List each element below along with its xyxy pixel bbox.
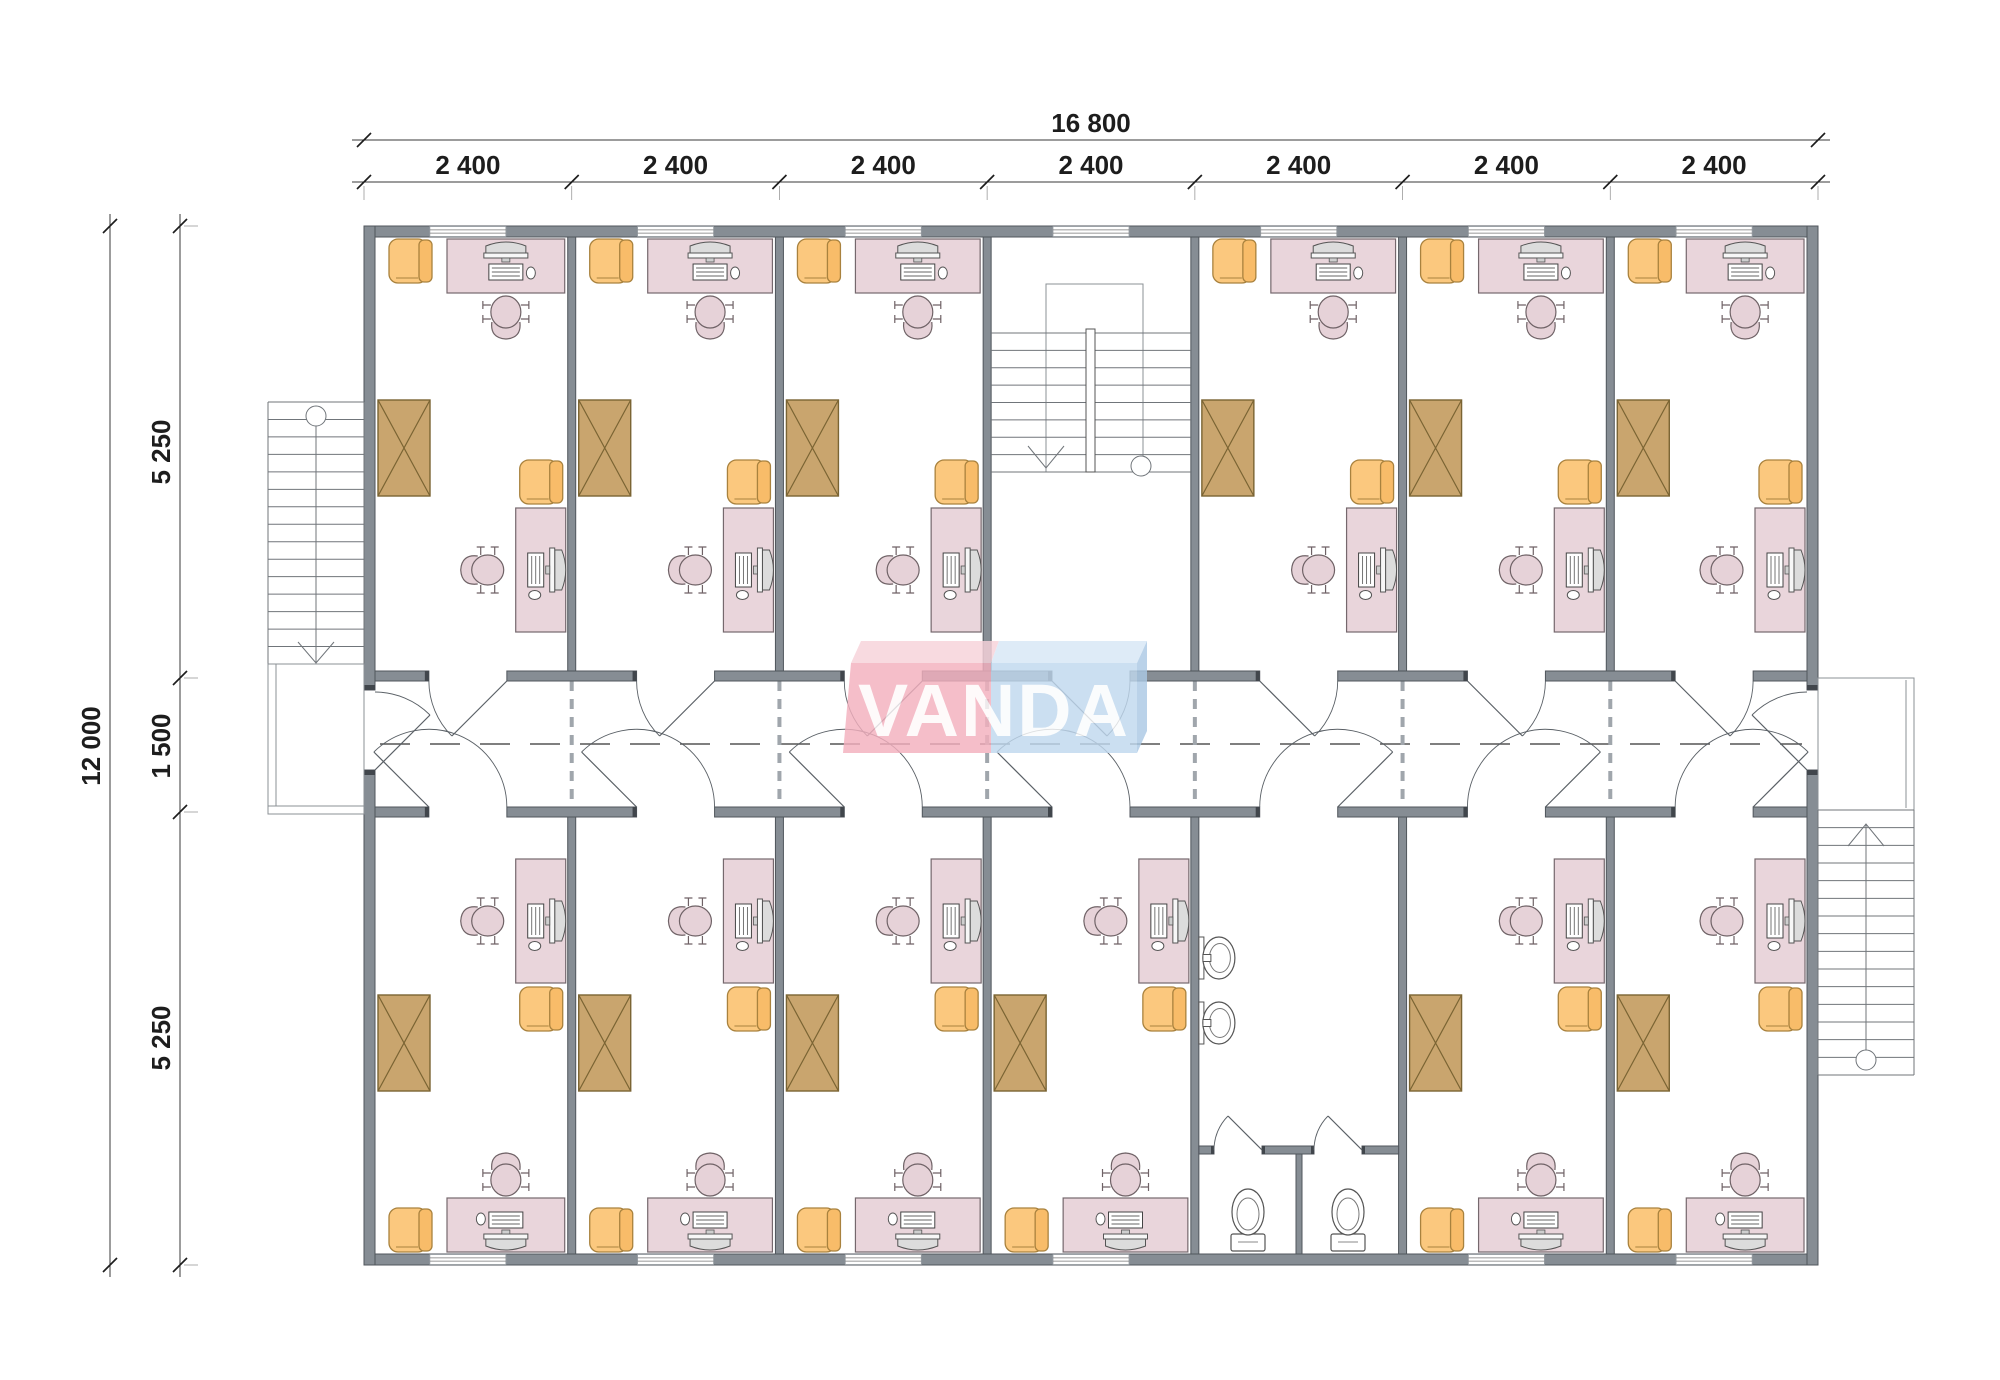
dim-bay-3: 2 400 [851, 150, 916, 180]
sink-icon [1199, 937, 1235, 979]
task-chair-icon [1700, 547, 1743, 593]
armchair-icon [797, 1208, 840, 1252]
door-swing-icon [637, 681, 715, 736]
wall [375, 807, 429, 817]
door-swing-icon [1467, 729, 1600, 807]
armchair-icon [727, 460, 770, 504]
wall [983, 237, 991, 671]
office-room [1617, 859, 1805, 1252]
stair-landing [268, 664, 364, 814]
task-chair-icon [483, 1153, 529, 1196]
armchair-icon [520, 987, 563, 1031]
task-chair-icon [1499, 898, 1542, 944]
door-swing-icon [375, 692, 430, 770]
armchair-icon [1005, 1208, 1048, 1252]
wardrobe-icon [378, 400, 430, 496]
task-chair-icon [461, 547, 504, 593]
armchair-icon [520, 460, 563, 504]
task-chair-icon [687, 1153, 733, 1196]
wall [1399, 237, 1407, 671]
office-room [378, 239, 566, 632]
armchair-icon [1759, 460, 1802, 504]
window [845, 227, 921, 237]
office-room [786, 239, 981, 632]
task-chair-icon [895, 1153, 941, 1196]
wall [775, 817, 783, 1254]
task-chair-icon [1700, 898, 1743, 944]
armchair-icon [1143, 987, 1186, 1031]
armchair-icon [1628, 1208, 1671, 1252]
dim-bay-6: 2 400 [1474, 150, 1539, 180]
door-swing-icon [582, 729, 715, 807]
office-room [1202, 239, 1397, 632]
wall [1338, 807, 1468, 817]
armchair-icon [935, 987, 978, 1031]
armchair-icon [1628, 239, 1671, 283]
task-chair-icon [1518, 1153, 1564, 1196]
armchair-icon [727, 987, 770, 1031]
office-room [579, 239, 774, 632]
dim-total-width: 16 800 [1051, 108, 1131, 138]
task-chair-icon [687, 296, 733, 339]
wall [1807, 226, 1818, 690]
door-swing-icon [1467, 681, 1545, 736]
dim-bay-2: 2 400 [643, 150, 708, 180]
wall [1606, 237, 1614, 671]
wall [507, 671, 637, 681]
dim-total-height: 12 000 [76, 706, 106, 786]
task-chair-icon [1518, 296, 1564, 339]
wall [568, 237, 576, 671]
window [638, 227, 714, 237]
dim-row-3: 5 250 [146, 1005, 176, 1070]
task-chair-icon [668, 898, 711, 944]
wall [715, 671, 845, 681]
wall [1753, 807, 1807, 817]
wall [364, 226, 375, 690]
armchair-icon [797, 239, 840, 283]
wall [1399, 817, 1407, 1254]
armchair-icon [1213, 239, 1256, 283]
window [638, 1255, 714, 1265]
dim-bay-1: 2 400 [435, 150, 500, 180]
logo-top-blue [991, 641, 1147, 663]
wall [1191, 237, 1199, 671]
task-chair-icon [1722, 296, 1768, 339]
wardrobe-icon [1410, 400, 1462, 496]
wardrobe-icon [1410, 995, 1462, 1091]
door-swing-icon [374, 729, 507, 807]
wall [1753, 671, 1807, 681]
wardrobe-icon [994, 995, 1046, 1091]
armchair-icon [1351, 460, 1394, 504]
armchair-icon [1759, 987, 1802, 1031]
window [845, 1255, 921, 1265]
door-swing-icon [429, 681, 507, 736]
floor-plan-page: 16 800 2 400 2 400 2 400 2 400 2 400 2 4… [0, 0, 2000, 1380]
wardrobe-icon [579, 995, 631, 1091]
office-room [579, 859, 774, 1252]
task-chair-icon [1292, 547, 1335, 593]
wall [1130, 807, 1260, 817]
window [1053, 227, 1129, 237]
door-swing-icon [1752, 692, 1807, 770]
logo-top-pink [851, 641, 999, 663]
wall [922, 807, 1052, 817]
dim-bay-4: 2 400 [1058, 150, 1123, 180]
wardrobe-icon [1202, 400, 1254, 496]
central-staircase [991, 284, 1191, 476]
door-swing-icon [1260, 681, 1338, 736]
dim-row-2: 1 500 [146, 713, 176, 778]
window [1468, 1255, 1544, 1265]
wall [1606, 817, 1614, 1254]
dim-row-1: 5 250 [146, 419, 176, 484]
wall [715, 807, 845, 817]
wall [1191, 817, 1199, 1254]
door-swing-icon [1675, 681, 1753, 736]
task-chair-icon [1103, 1153, 1149, 1196]
logo-text: VANDA [858, 669, 1130, 752]
armchair-icon [1421, 1208, 1464, 1252]
floor-plan-canvas: 16 800 2 400 2 400 2 400 2 400 2 400 2 4… [0, 0, 2000, 1380]
wall [1545, 671, 1675, 681]
wardrobe-icon [1617, 995, 1669, 1091]
toilet-icon [1231, 1189, 1265, 1251]
window [1053, 1255, 1129, 1265]
armchair-icon [1558, 987, 1601, 1031]
wall [1130, 671, 1260, 681]
wall [775, 237, 783, 671]
task-chair-icon [668, 547, 711, 593]
office-room [378, 859, 566, 1252]
office-room [1410, 239, 1605, 632]
task-chair-icon [876, 547, 919, 593]
armchair-icon [389, 239, 432, 283]
dim-bay-7: 2 400 [1682, 150, 1747, 180]
right-exterior-stair [1818, 678, 1914, 1075]
sink-icon [1199, 1002, 1235, 1044]
wall [375, 671, 429, 681]
task-chair-icon [1310, 296, 1356, 339]
armchair-icon [389, 1208, 432, 1252]
wardrobe-icon [579, 400, 631, 496]
wardrobe-icon [786, 995, 838, 1091]
wall [1338, 671, 1468, 681]
office-room [1410, 859, 1605, 1252]
stall-divider [1296, 1154, 1302, 1254]
dim-bay-5: 2 400 [1266, 150, 1331, 180]
wall [1807, 770, 1818, 1265]
task-chair-icon [483, 296, 529, 339]
task-chair-icon [895, 296, 941, 339]
wall [1545, 807, 1675, 817]
door-swing-icon [1675, 729, 1808, 807]
left-exterior-stair [268, 402, 364, 814]
armchair-icon [1421, 239, 1464, 283]
window [1261, 227, 1337, 237]
wall [983, 817, 991, 1254]
task-chair-icon [876, 898, 919, 944]
door-swing-icon [1260, 729, 1393, 807]
office-room [1617, 239, 1805, 632]
wardrobe-icon [378, 995, 430, 1091]
stair-landing [1818, 678, 1914, 810]
window [1468, 227, 1544, 237]
vanda-logo: VANDA [843, 641, 1147, 753]
window [430, 227, 506, 237]
wardrobe-icon [786, 400, 838, 496]
wardrobe-icon [1617, 400, 1669, 496]
toilet-icon [1331, 1189, 1365, 1251]
office-room [994, 859, 1189, 1252]
task-chair-icon [1499, 547, 1542, 593]
armchair-icon [935, 460, 978, 504]
armchair-icon [590, 1208, 633, 1252]
sanitary-layer [1199, 937, 1399, 1254]
washroom [1199, 937, 1399, 1254]
task-chair-icon [461, 898, 504, 944]
window [1676, 1255, 1752, 1265]
armchair-icon [1558, 460, 1601, 504]
wall [364, 770, 375, 1265]
wall [568, 817, 576, 1254]
window [430, 1255, 506, 1265]
armchair-icon [590, 239, 633, 283]
wall [507, 807, 637, 817]
task-chair-icon [1722, 1153, 1768, 1196]
window [1676, 227, 1752, 237]
task-chair-icon [1084, 898, 1127, 944]
office-room [786, 859, 981, 1252]
